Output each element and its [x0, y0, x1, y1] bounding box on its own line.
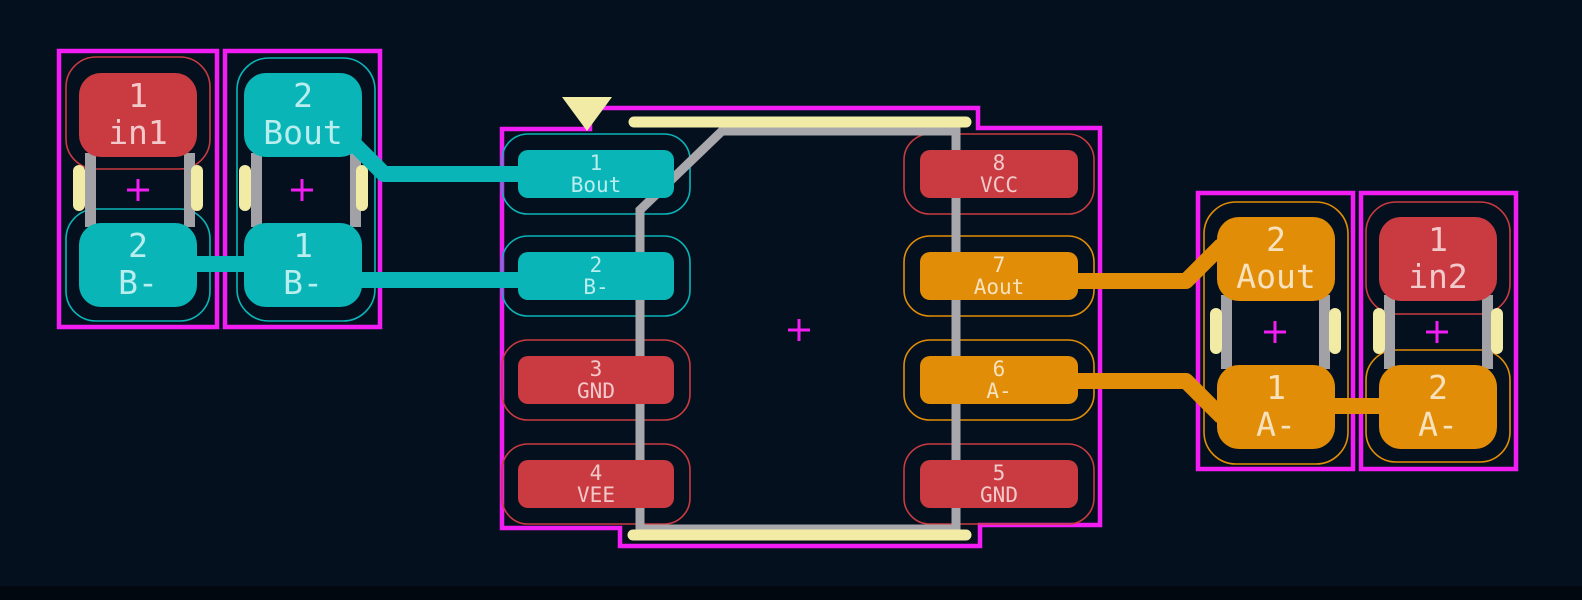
pad-net: GND [577, 380, 615, 402]
pad-number: 3 [590, 358, 603, 380]
silk-bar [73, 165, 85, 211]
silk-bar [1373, 308, 1385, 354]
ic-pad-3-gnd[interactable]: 3 GND [518, 356, 674, 404]
pad-net: in2 [1408, 259, 1468, 296]
right-inner-pad-2-aout[interactable]: 2 Aout [1217, 217, 1335, 301]
pad-number: 8 [993, 152, 1006, 174]
left-inner-pad-1-bminus[interactable]: 1 B- [244, 223, 362, 307]
fab-bar [1319, 295, 1330, 369]
anchor-cross-right-outer [1426, 321, 1448, 343]
pad-number: 1 [1266, 370, 1286, 407]
pin1-triangle-marker [562, 97, 612, 131]
anchor-cross-left-outer [127, 179, 149, 201]
pcb-canvas[interactable]: 1 Bout 2 B- 3 GND 4 VEE 8 VCC 7 Aout 6 A… [0, 0, 1582, 600]
left-outer-pad-2-bminus[interactable]: 2 B- [79, 223, 197, 307]
pad-net: A- [1256, 407, 1296, 444]
pad-number: 1 [293, 228, 313, 265]
pad-number: 2 [128, 228, 148, 265]
ic-pad-6-aminus[interactable]: 6 A- [920, 356, 1078, 404]
anchor-cross-left-inner [291, 179, 313, 201]
silk-bar [356, 165, 368, 211]
ic-pad-1-bout[interactable]: 1 Bout [518, 150, 674, 198]
pad-number: 5 [993, 462, 1006, 484]
pad-net: A- [1418, 407, 1458, 444]
pad-number: 1 [1428, 222, 1448, 259]
ic-pad-5-gnd[interactable]: 5 GND [920, 460, 1078, 508]
right-outer-pad-1-in2[interactable]: 1 in2 [1379, 217, 1497, 301]
pad-net: GND [980, 484, 1018, 506]
fab-bar [1221, 295, 1232, 369]
pad-number: 2 [590, 254, 603, 276]
anchor-cross-right-inner [1264, 321, 1286, 343]
ic-pad-2-bminus[interactable]: 2 B- [518, 252, 674, 300]
pad-net: VCC [980, 174, 1018, 196]
right-outer-pad-2-aminus[interactable]: 2 A- [1379, 365, 1497, 449]
silk-bar [1329, 308, 1341, 354]
fab-bar [85, 153, 96, 227]
pad-net: Aout [1236, 259, 1315, 296]
canvas-edge-strip [0, 586, 1582, 600]
pad-number: 6 [993, 358, 1006, 380]
silk-bar [1210, 308, 1222, 354]
ic-pad-4-vee[interactable]: 4 VEE [518, 460, 674, 508]
pad-number: 2 [293, 78, 313, 115]
silk-bar [239, 165, 251, 211]
pad-net: B- [583, 276, 608, 298]
right-inner-pad-1-aminus[interactable]: 1 A- [1217, 365, 1335, 449]
left-outer-pad-1-in1[interactable]: 1 in1 [79, 73, 197, 157]
silk-bar [1491, 308, 1503, 354]
pad-net: B- [118, 265, 158, 302]
pad-net: A- [986, 380, 1011, 402]
anchor-cross-ic [788, 319, 810, 341]
pad-number: 7 [993, 254, 1006, 276]
ic-pad-7-aout[interactable]: 7 Aout [920, 252, 1078, 300]
pad-net: Bout [571, 174, 622, 196]
fab-bar [1384, 295, 1395, 369]
pad-number: 4 [590, 462, 603, 484]
pad-net: B- [283, 265, 323, 302]
pad-number: 2 [1428, 370, 1448, 407]
pcb-drawing-layers [0, 0, 1582, 600]
pad-net: Bout [263, 115, 342, 152]
pad-number: 1 [590, 152, 603, 174]
fab-bar [251, 153, 262, 227]
pad-net: VEE [577, 484, 615, 506]
ic-pad-8-vcc[interactable]: 8 VCC [920, 150, 1078, 198]
silk-bar [191, 165, 203, 211]
pad-net: in1 [108, 115, 168, 152]
pad-net: Aout [974, 276, 1025, 298]
pad-number: 2 [1266, 222, 1286, 259]
pad-number: 1 [128, 78, 148, 115]
left-inner-pad-2-bout[interactable]: 2 Bout [244, 73, 362, 157]
